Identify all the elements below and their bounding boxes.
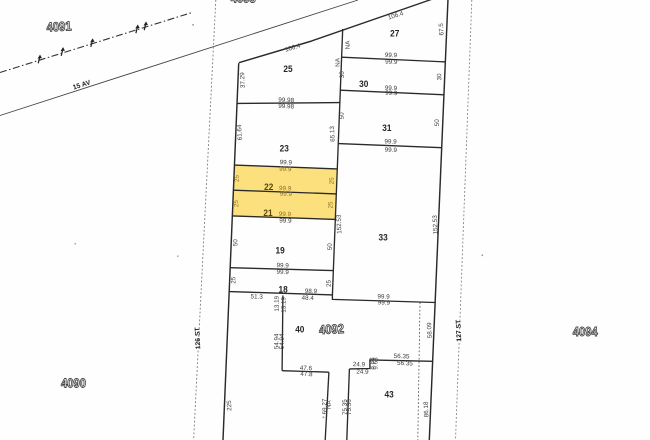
svg-text:65.13: 65.13 [329,125,337,142]
svg-text:99.9: 99.9 [384,138,397,145]
svg-text:99.9: 99.9 [279,166,292,173]
svg-text:25: 25 [233,199,240,207]
svg-text:25: 25 [283,64,292,74]
svg-text:99.9: 99.9 [385,59,398,66]
svg-text:9.63: 9.63 [372,357,379,370]
svg-text:25: 25 [328,177,335,185]
svg-text:25: 25 [327,201,334,209]
svg-text:27: 27 [390,28,399,38]
svg-text:99.9: 99.9 [279,217,292,224]
svg-text:56.35: 56.35 [397,360,413,368]
svg-text:127 ST: 127 ST [455,319,463,342]
svg-text:NA: NA [344,40,351,50]
svg-text:33: 33 [379,232,388,242]
svg-text:NA: NA [326,399,333,409]
svg-text:99.9: 99.9 [276,269,289,276]
svg-text:99.9: 99.9 [385,147,398,154]
svg-text:47.8: 47.8 [300,371,313,378]
svg-text:48.4: 48.4 [301,295,314,302]
svg-text:50: 50 [434,119,441,127]
svg-text:NA: NA [334,57,341,67]
svg-text:24.9: 24.9 [356,368,369,375]
svg-text:58.09: 58.09 [426,322,434,339]
svg-text:51.3: 51.3 [250,293,263,300]
svg-text:30: 30 [339,71,346,79]
svg-text:25: 25 [325,279,332,287]
svg-text:13.19: 13.19 [281,296,288,312]
svg-text:86.18: 86.18 [423,401,431,418]
svg-text:126 ST: 126 ST [194,326,202,349]
svg-text:30: 30 [436,73,443,81]
svg-text:50: 50 [338,112,345,120]
svg-text:225: 225 [226,400,233,411]
svg-text:30: 30 [359,79,368,89]
svg-text:37.29: 37.29 [239,72,247,89]
svg-text:4093: 4093 [231,0,256,6]
svg-text:22: 22 [264,182,273,192]
svg-text:25: 25 [234,174,241,182]
svg-text:50: 50 [327,243,334,251]
svg-text:24.9: 24.9 [353,361,366,368]
svg-text:4090: 4090 [61,375,86,390]
svg-text:31: 31 [382,123,391,133]
svg-text:25: 25 [230,276,237,284]
svg-text:99.98: 99.98 [278,103,294,111]
svg-text:43: 43 [385,389,394,399]
svg-text:152.53: 152.53 [432,215,440,235]
svg-text:4091: 4091 [46,18,72,34]
svg-text:99.9: 99.9 [385,90,398,97]
svg-text:54.94: 54.94 [279,333,286,349]
svg-text:23: 23 [280,144,289,154]
svg-text:4094: 4094 [573,324,599,339]
svg-text:99.9: 99.9 [280,191,293,198]
svg-text:50: 50 [232,239,239,247]
svg-text:75.36: 75.36 [346,399,353,415]
svg-text:18: 18 [279,285,288,295]
svg-text:67.5: 67.5 [438,23,446,36]
svg-text:4092: 4092 [319,321,345,337]
svg-text:61.64: 61.64 [236,124,244,141]
svg-text:99.9: 99.9 [378,299,391,306]
svg-text:19: 19 [276,246,285,256]
svg-text:152.53: 152.53 [336,214,344,234]
svg-text:21: 21 [263,208,272,218]
svg-text:40: 40 [295,324,304,334]
